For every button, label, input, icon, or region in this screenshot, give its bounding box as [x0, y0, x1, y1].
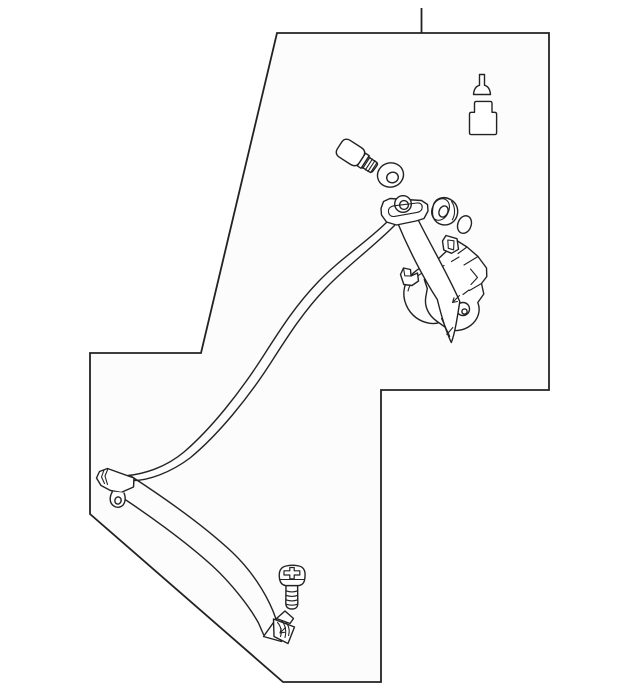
bushing-hole — [439, 206, 448, 217]
parts-diagram-svg — [0, 0, 640, 693]
retractor-spool-hub — [462, 309, 467, 314]
spacer-grommet — [378, 163, 404, 187]
left-anchor-tab-hole — [115, 497, 121, 504]
grommet-inner-hole — [387, 172, 399, 183]
o-ring — [458, 216, 472, 234]
retractor-mount-tab — [443, 236, 459, 254]
parts-diagram-canvas — [0, 0, 640, 693]
guide-bushing — [432, 198, 458, 225]
